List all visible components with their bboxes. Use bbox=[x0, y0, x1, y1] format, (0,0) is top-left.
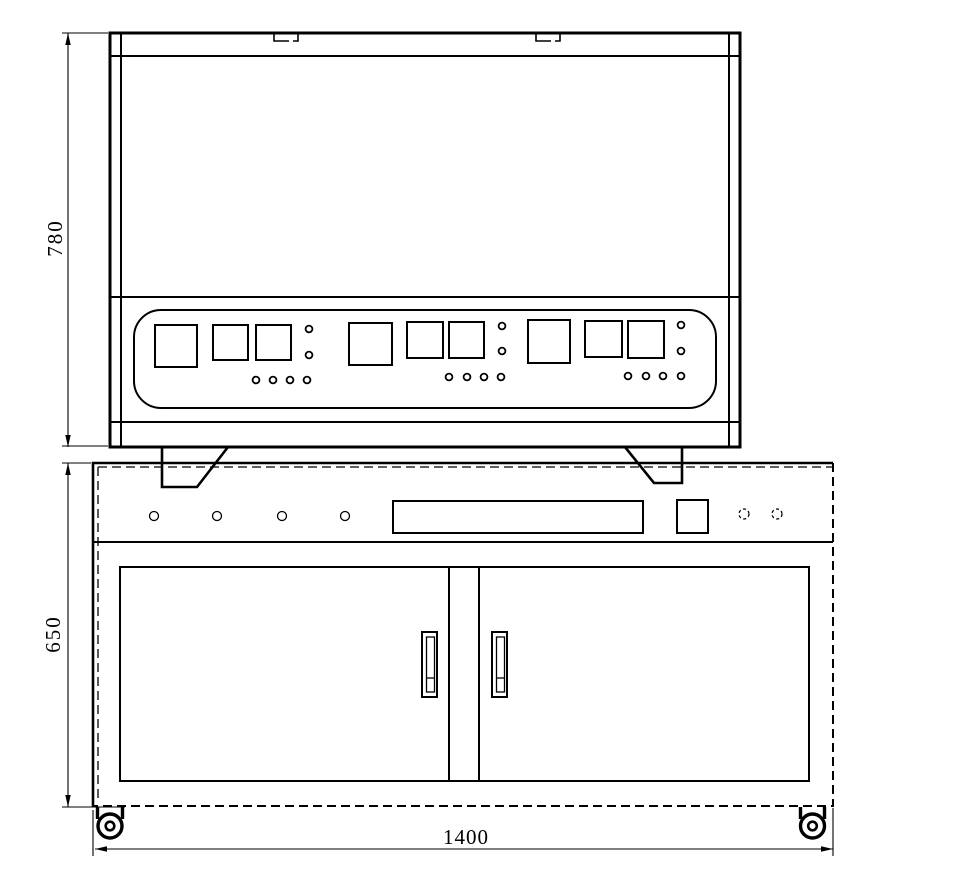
indicator-hole bbox=[498, 374, 505, 381]
indicator-hole bbox=[625, 373, 632, 380]
indicator-hole bbox=[306, 352, 313, 359]
display-window bbox=[349, 323, 392, 365]
caster-axle bbox=[106, 822, 115, 831]
apron-hole bbox=[341, 512, 350, 521]
dimension-1400: 1400 bbox=[93, 808, 833, 856]
indicator-hole bbox=[499, 348, 506, 355]
arrowhead-left bbox=[95, 846, 107, 851]
arrowhead-down bbox=[65, 435, 70, 447]
dimension-label-1400: 1400 bbox=[443, 825, 489, 849]
display-window bbox=[528, 320, 570, 363]
indicator-hole bbox=[287, 377, 294, 384]
right-door-handle bbox=[492, 632, 507, 697]
indicator-hole bbox=[464, 374, 471, 381]
arrowhead-up bbox=[65, 463, 70, 475]
apron-cutout bbox=[677, 500, 708, 533]
button-cutout bbox=[449, 322, 484, 358]
panel-group-3 bbox=[528, 320, 684, 379]
apron-hole bbox=[150, 512, 159, 521]
apron-hole bbox=[213, 512, 222, 521]
left-caster bbox=[98, 807, 123, 838]
apron-hidden-hole bbox=[739, 509, 749, 519]
base-cabinet bbox=[93, 463, 833, 807]
arrowhead-right bbox=[821, 846, 833, 851]
cabinet-outline-hidden bbox=[93, 463, 833, 806]
indicator-hole bbox=[660, 373, 667, 380]
arrowhead-down bbox=[65, 795, 70, 807]
button-cutout bbox=[213, 325, 248, 360]
indicator-hole bbox=[678, 373, 685, 380]
caster-wheel bbox=[98, 814, 122, 838]
handle-recess bbox=[427, 637, 435, 692]
right-foot bbox=[625, 447, 682, 483]
right-caster bbox=[801, 807, 825, 838]
apron-hole bbox=[278, 512, 287, 521]
apron-slot bbox=[393, 501, 643, 533]
dimension-label-650: 650 bbox=[41, 615, 65, 653]
handle-recess bbox=[497, 637, 505, 692]
panel-group-2 bbox=[349, 322, 505, 380]
indicator-hole bbox=[446, 374, 453, 381]
indicator-hole bbox=[306, 326, 313, 333]
indicator-hole bbox=[678, 348, 685, 355]
display-window bbox=[155, 325, 197, 367]
dimension-650: 650 bbox=[41, 463, 125, 807]
button-cutout bbox=[256, 325, 291, 360]
lid-notch-right bbox=[536, 34, 560, 41]
caster-wheel bbox=[801, 814, 825, 838]
indicator-hole bbox=[481, 374, 488, 381]
door-frame bbox=[120, 567, 809, 781]
indicator-hole bbox=[643, 373, 650, 380]
caster-axle bbox=[808, 822, 817, 831]
top-unit-outline bbox=[110, 33, 740, 447]
left-door-handle bbox=[422, 632, 437, 697]
technical-drawing: 780 650 1400 bbox=[0, 0, 956, 887]
button-cutout bbox=[407, 322, 443, 358]
indicator-hole bbox=[304, 377, 311, 384]
arrowhead-up bbox=[65, 33, 70, 45]
button-cutout bbox=[628, 321, 664, 358]
apron-hidden-hole bbox=[772, 509, 782, 519]
lid-notch-left bbox=[274, 34, 298, 41]
indicator-hole bbox=[253, 377, 260, 384]
drawing-canvas: 780 650 1400 bbox=[0, 0, 956, 887]
top-unit bbox=[110, 33, 740, 447]
dimension-780: 780 bbox=[43, 33, 108, 447]
button-cutout bbox=[585, 321, 622, 357]
panel-group-1 bbox=[155, 325, 312, 383]
indicator-hole bbox=[678, 322, 685, 329]
indicator-hole bbox=[499, 323, 506, 330]
indicator-hole bbox=[270, 377, 277, 384]
dimension-label-780: 780 bbox=[43, 219, 67, 257]
cabinet-outline-solid bbox=[93, 463, 833, 807]
